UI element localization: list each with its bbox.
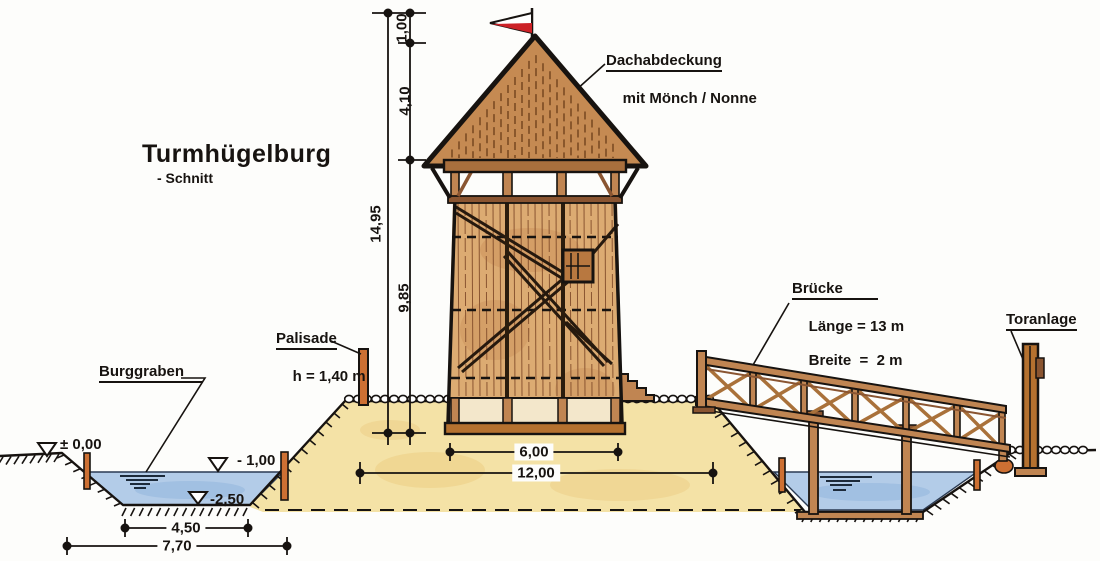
drawing-subtitle: - Schnitt bbox=[157, 170, 213, 186]
gate-structure bbox=[1015, 344, 1046, 476]
moat-annotation-title: Burggraben bbox=[99, 363, 203, 383]
bridge-width-label: Breite = 2 m bbox=[809, 352, 903, 369]
gate-annotation-title: Toranlage bbox=[1006, 311, 1077, 331]
bridge-annotation-title: Brücke bbox=[792, 280, 878, 300]
dim-tower-width: 6,00 bbox=[514, 444, 553, 461]
roof-annotation: Dachabdeckung mit Mönch / Nonne bbox=[606, 52, 757, 107]
palisade-height-label: h = 1,40 m bbox=[293, 368, 366, 385]
dim-moat-top: 7,70 bbox=[157, 538, 196, 555]
level-bottom: -2,50 bbox=[210, 491, 244, 508]
level-ground: ± 0,00 bbox=[60, 436, 102, 453]
bridge-length-label: Länge = 13 m bbox=[809, 318, 904, 335]
palisade-annotation-title: Palisade bbox=[276, 330, 337, 350]
dim-flag-mast: 1,00 bbox=[394, 13, 411, 42]
dim-roof-height: 4,10 bbox=[397, 86, 414, 115]
gate-annotation: Toranlage bbox=[1006, 311, 1077, 331]
level-water: - 1,00 bbox=[237, 452, 275, 469]
dim-wall-height: 9,85 bbox=[396, 283, 413, 312]
dim-moat-bottom: 4,50 bbox=[166, 520, 205, 537]
bridge-annotation: Brücke Länge = 13 m Breite = 2 m bbox=[792, 280, 904, 369]
tower-sill bbox=[445, 423, 625, 434]
section-drawing: Turmhügelburg - Schnitt Dachabdeckung mi… bbox=[0, 0, 1100, 561]
dim-mound-width: 12,00 bbox=[512, 465, 560, 482]
drawing-title: Turmhügelburg bbox=[142, 140, 331, 169]
palisade-annotation: Palisade h = 1,40 m bbox=[276, 330, 366, 385]
roof-annotation-detail: mit Mönch / Nonne bbox=[623, 90, 757, 107]
level-water-icon bbox=[209, 458, 227, 471]
roof-annotation-title: Dachabdeckung bbox=[606, 52, 722, 72]
dim-total-height: 14,95 bbox=[368, 205, 385, 243]
tower-window bbox=[563, 250, 593, 282]
moat-annotation: Burggraben bbox=[99, 363, 203, 383]
flag bbox=[490, 8, 532, 42]
